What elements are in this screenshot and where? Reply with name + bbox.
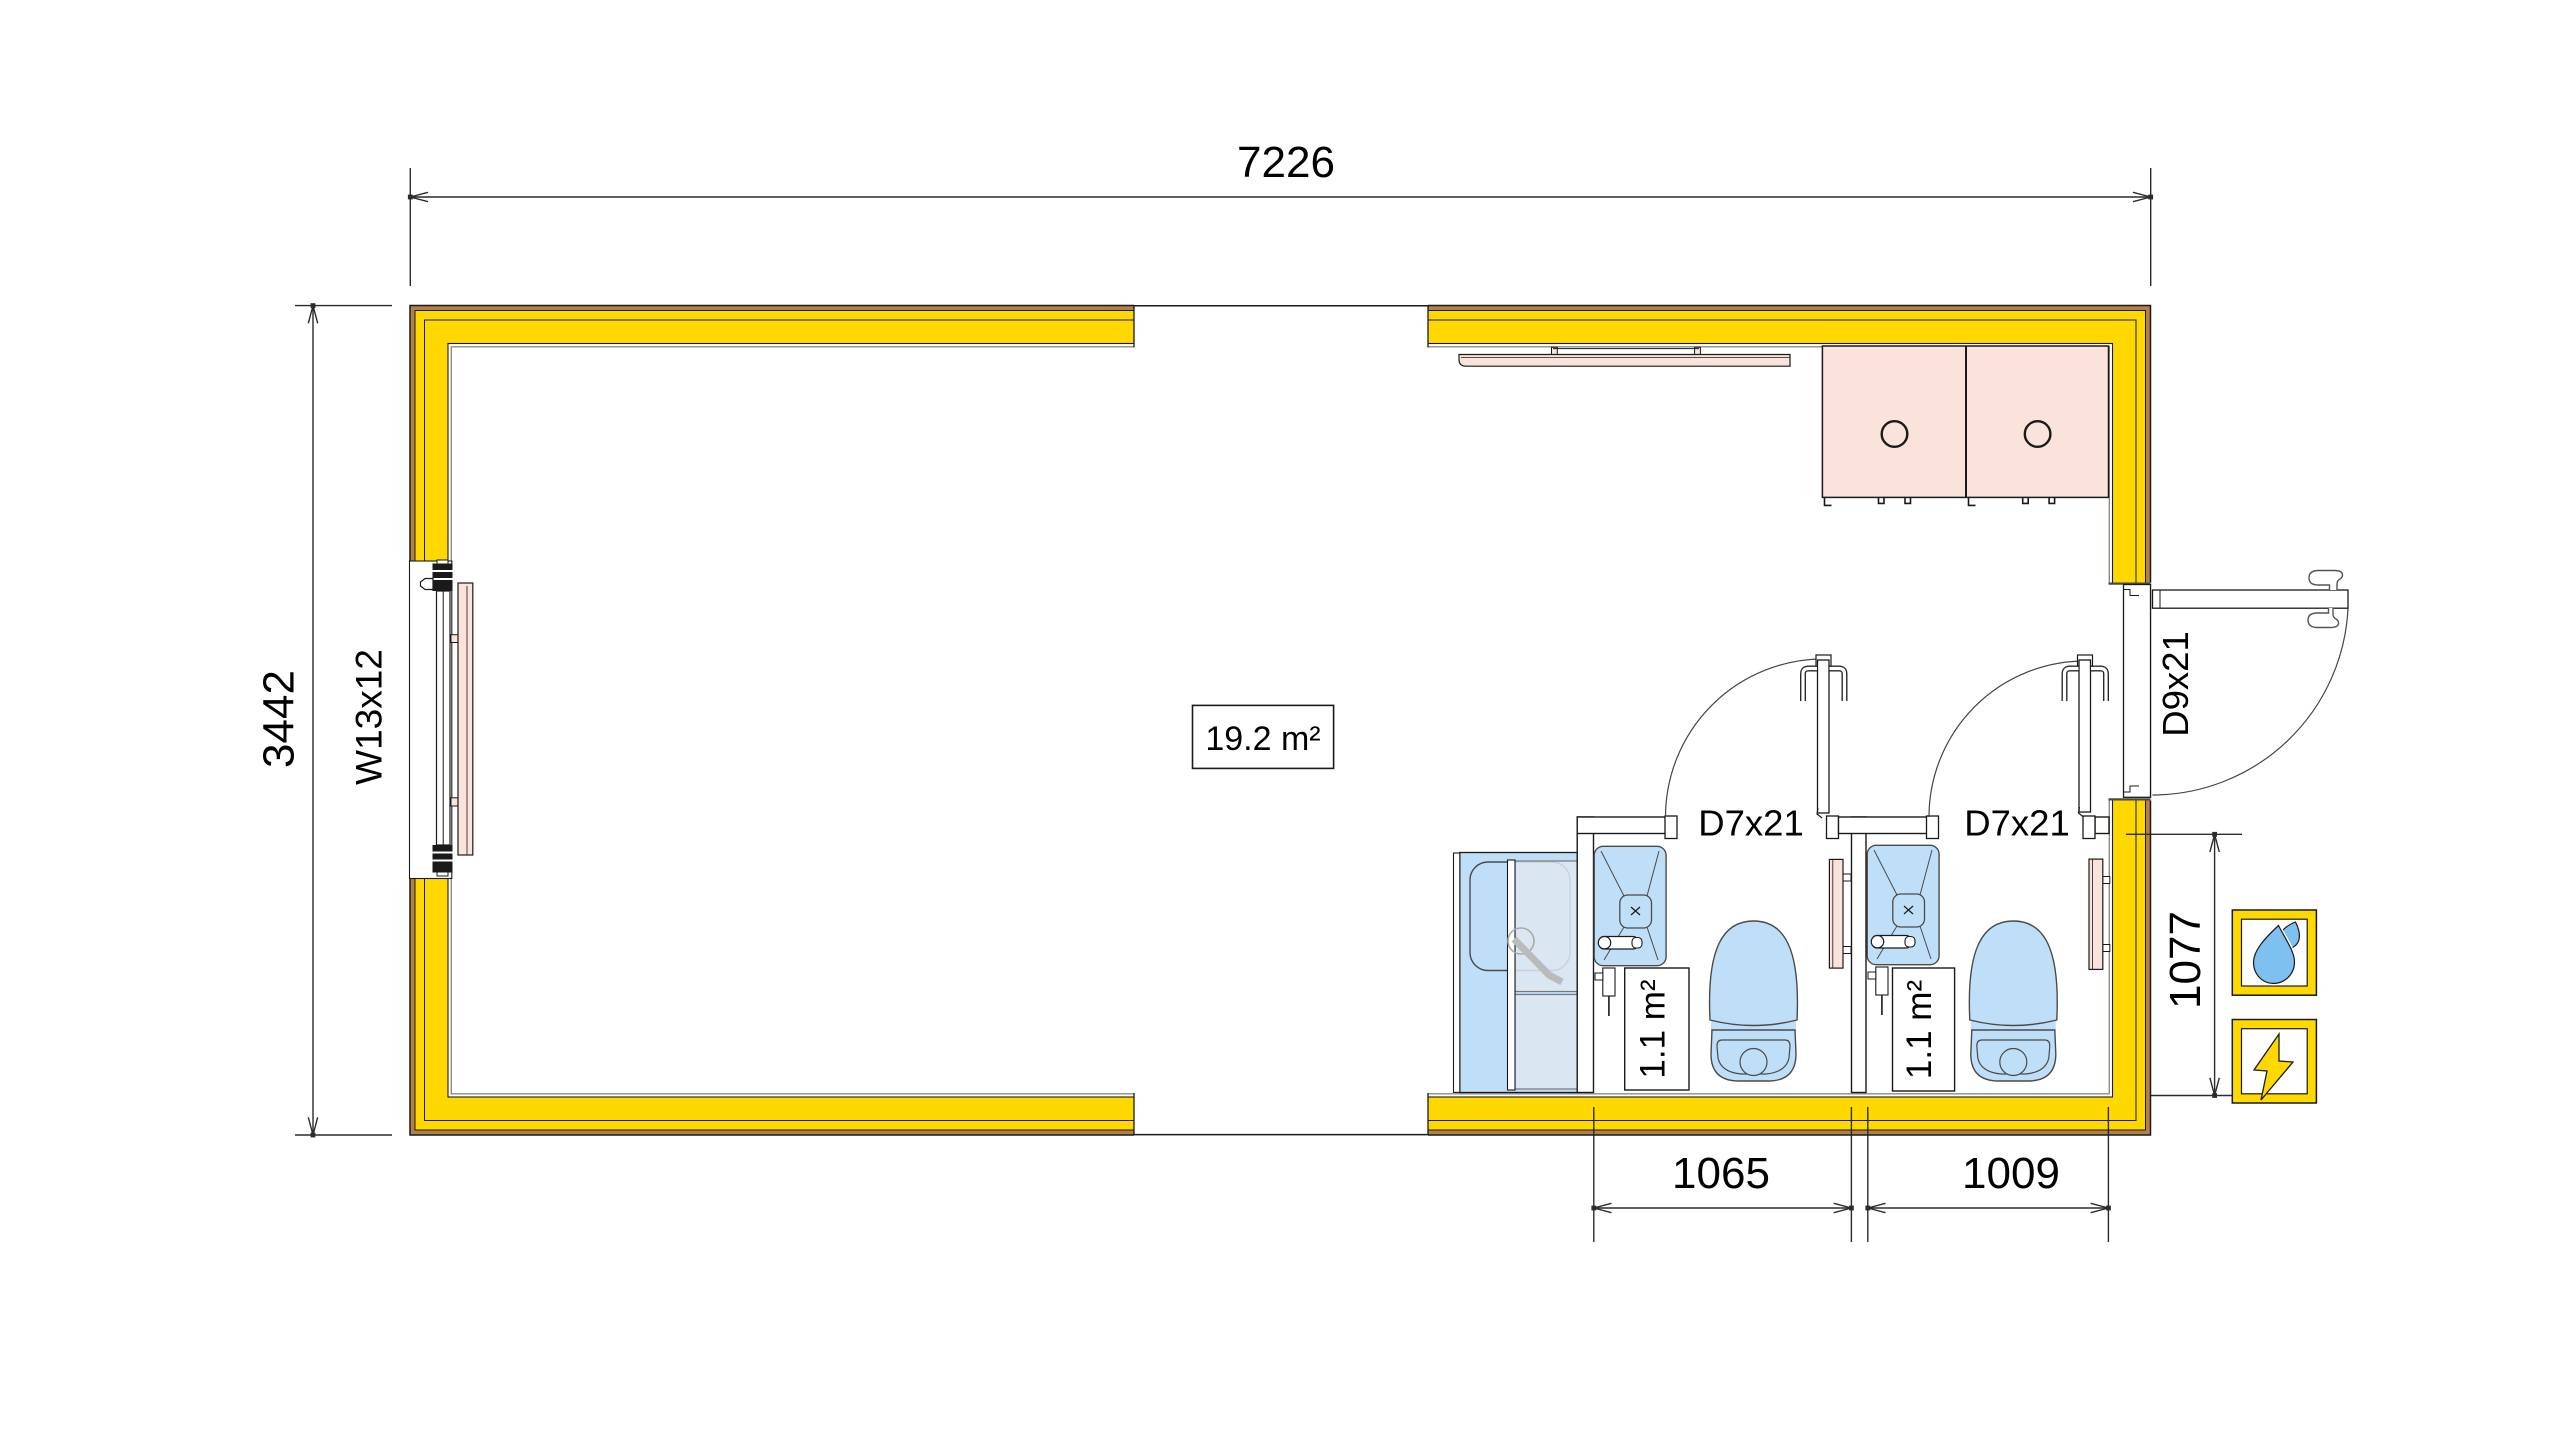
svg-text:D7x21: D7x21 bbox=[1964, 803, 2070, 844]
svg-text:1009: 1009 bbox=[1962, 1149, 2060, 1198]
svg-text:1.1 m²: 1.1 m² bbox=[1634, 979, 1673, 1078]
svg-text:1065: 1065 bbox=[1672, 1149, 1770, 1198]
svg-text:1.1 m²: 1.1 m² bbox=[1900, 980, 1939, 1079]
svg-text:19.2 m²: 19.2 m² bbox=[1205, 720, 1320, 758]
svg-text:7226: 7226 bbox=[1237, 138, 1335, 187]
svg-text:W13x12: W13x12 bbox=[349, 649, 390, 785]
svg-text:1077: 1077 bbox=[2161, 911, 2210, 1009]
svg-text:D9x21: D9x21 bbox=[2155, 631, 2196, 737]
svg-text:3442: 3442 bbox=[255, 670, 304, 768]
svg-text:D7x21: D7x21 bbox=[1698, 803, 1804, 844]
